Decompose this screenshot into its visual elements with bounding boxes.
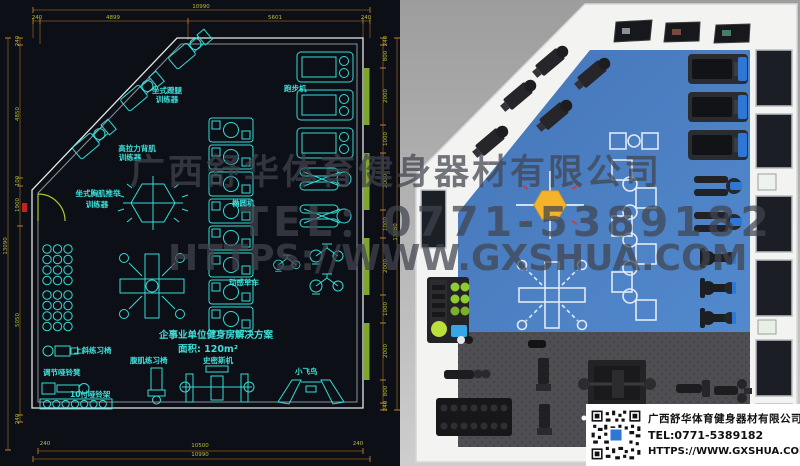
label-lat-pull-2: 训练器 <box>119 152 142 162</box>
treadmill-icon <box>297 90 353 120</box>
dimension-label: 5050 <box>15 313 21 327</box>
leg-press-icon <box>168 28 213 69</box>
qr-logo <box>610 429 621 440</box>
dimension-label: 10990 <box>191 452 209 458</box>
dimension-label: 100 <box>15 175 21 186</box>
dimension-label: 240 <box>15 413 21 424</box>
dimension-label: 13090 <box>3 237 9 255</box>
cad-drawing: 2404899560124024048501001900505024024080… <box>0 0 400 466</box>
window <box>756 340 792 396</box>
window <box>756 196 792 252</box>
label-treadmill: 跑步机 <box>284 83 307 93</box>
door <box>22 194 65 221</box>
strength-station-icon <box>209 307 253 331</box>
treadmill-3d <box>688 54 748 84</box>
label-dumbbell-rack: 10付哑铃架 <box>70 389 111 399</box>
dimension-label: 10990 <box>192 4 210 10</box>
dimension-label: 5601 <box>268 15 282 21</box>
company-tel: TEL:0771-5389182 <box>648 427 800 444</box>
smith-machine-icon <box>180 366 254 402</box>
poster <box>614 20 652 42</box>
power-rack-3d <box>578 360 656 406</box>
render-3d: 广西舒华体育健身器材有限公司 TEL:0771-5389182 HTTPS://… <box>400 0 800 466</box>
dimension-label: 240 <box>383 400 389 411</box>
window <box>756 260 792 316</box>
bench-3d <box>536 358 551 391</box>
label-chest-press-2: 训练器 <box>86 199 109 209</box>
dimension-label: 13080 <box>393 223 399 241</box>
dimension-label: 2000 <box>383 89 389 103</box>
treadmill-icon <box>297 128 353 158</box>
dimension-lines: 2404899560124024048501001900505024024080… <box>3 4 400 462</box>
dimension-label: 2000 <box>383 259 389 273</box>
label-cable-fly: 小飞鸟 <box>295 366 318 376</box>
elliptical-icon <box>300 205 351 227</box>
incline-bench-icon <box>43 346 78 356</box>
dumbbell-rack-3d <box>436 398 512 436</box>
strength-station-icon <box>209 172 253 196</box>
contact-lines: 广西舒华体育健身器材有限公司 TEL:0771-5389182 HTTPS://… <box>648 411 800 460</box>
multi-station-icon <box>120 254 185 319</box>
dimension-label: 4850 <box>15 107 21 121</box>
window <box>756 50 792 106</box>
dimension-label: 4899 <box>106 15 120 21</box>
strength-station-icon <box>209 253 253 277</box>
bench-3d <box>537 404 552 435</box>
company-name: 广西舒华体育健身器材有限公司 <box>648 411 800 427</box>
spin-bike-icon <box>274 255 300 271</box>
floor-item <box>528 340 546 348</box>
dimension-label: 240 <box>40 441 51 447</box>
dimension-label: 240 <box>383 35 389 46</box>
cable-fly-icon <box>278 380 344 404</box>
elliptical-icon <box>300 168 351 190</box>
label-smith: 史密斯机 <box>203 355 233 365</box>
qr-code <box>590 409 642 461</box>
render-scene <box>400 0 800 466</box>
strength-station-icon <box>209 226 253 250</box>
label-elliptical: 椭圆机 <box>232 198 255 208</box>
treadmill-3d <box>688 130 748 160</box>
spin-bike-icon <box>310 244 343 264</box>
dimension-label: 240 <box>353 441 364 447</box>
treadmill-icon <box>297 52 353 82</box>
dimension-label: 800 <box>383 50 389 61</box>
door-marker <box>22 203 27 212</box>
window-left-wall <box>421 190 446 248</box>
label-incline-bench: 上斜练习椅 <box>74 345 112 355</box>
plan-area: 面积: 120m² <box>178 343 238 355</box>
storage-rack <box>427 277 473 344</box>
dimension-label: 2000 <box>383 174 389 188</box>
dumbbell-rack-icon <box>43 291 72 331</box>
label-leg-press: 坐式蹬腿 <box>152 85 182 95</box>
dimension-label: 1900 <box>15 198 21 212</box>
poster <box>714 24 750 43</box>
strength-station-icon <box>209 145 253 169</box>
dimension-label: 800 <box>383 385 389 396</box>
poster <box>664 22 700 42</box>
window <box>756 114 792 168</box>
cad-labels: 坐式蹬腿 训练器 高拉力背肌 训练器 坐式胸肌推举 训练器 跑步机 椭圆机 动感… <box>43 83 318 399</box>
wall-frame <box>758 174 776 190</box>
contact-card: 广西舒华体育健身器材有限公司 TEL:0771-5389182 HTTPS://… <box>586 404 800 466</box>
dimension-label: 240 <box>15 35 21 46</box>
dimension-label: 240 <box>361 15 372 21</box>
dimension-label: 1000 <box>383 132 389 146</box>
cad-floorplan: 2404899560124024048501001900505024024080… <box>0 0 400 466</box>
dimension-label: 1000 <box>383 302 389 316</box>
dimension-label: 240 <box>32 15 43 21</box>
dimension-label: 2000 <box>383 344 389 358</box>
label-ab-bench: 腹肌练习椅 <box>129 355 168 365</box>
dumbbell-rack-icon <box>43 245 72 285</box>
ab-bench-icon <box>148 368 165 404</box>
label-chest-press: 坐式胸肌推举 <box>76 188 121 198</box>
spin-bike-icon <box>310 274 343 294</box>
window-strips <box>364 68 370 380</box>
gym-plan-composite: 2404899560124024048501001900505024024080… <box>0 0 800 466</box>
wall-frame <box>758 320 776 334</box>
dimension-label: 1000 <box>383 217 389 231</box>
strength-station-icon <box>209 118 253 142</box>
hexagon-light-icon <box>118 176 188 230</box>
label-leg-press-2: 训练器 <box>156 94 179 104</box>
treadmill-3d <box>688 92 748 122</box>
plan-title: 企事业单位健身房解决方案 <box>158 329 274 341</box>
label-adj-bench: 调节哑铃凳 <box>43 367 81 377</box>
row-machine-3d <box>444 370 491 380</box>
company-url: HTTPS://WWW.GXSHUA.COM <box>648 444 800 460</box>
label-lat-pull: 高拉力背肌 <box>118 143 156 153</box>
label-spin-bike: 动感单车 <box>229 277 259 287</box>
dimension-label: 10500 <box>191 443 209 449</box>
